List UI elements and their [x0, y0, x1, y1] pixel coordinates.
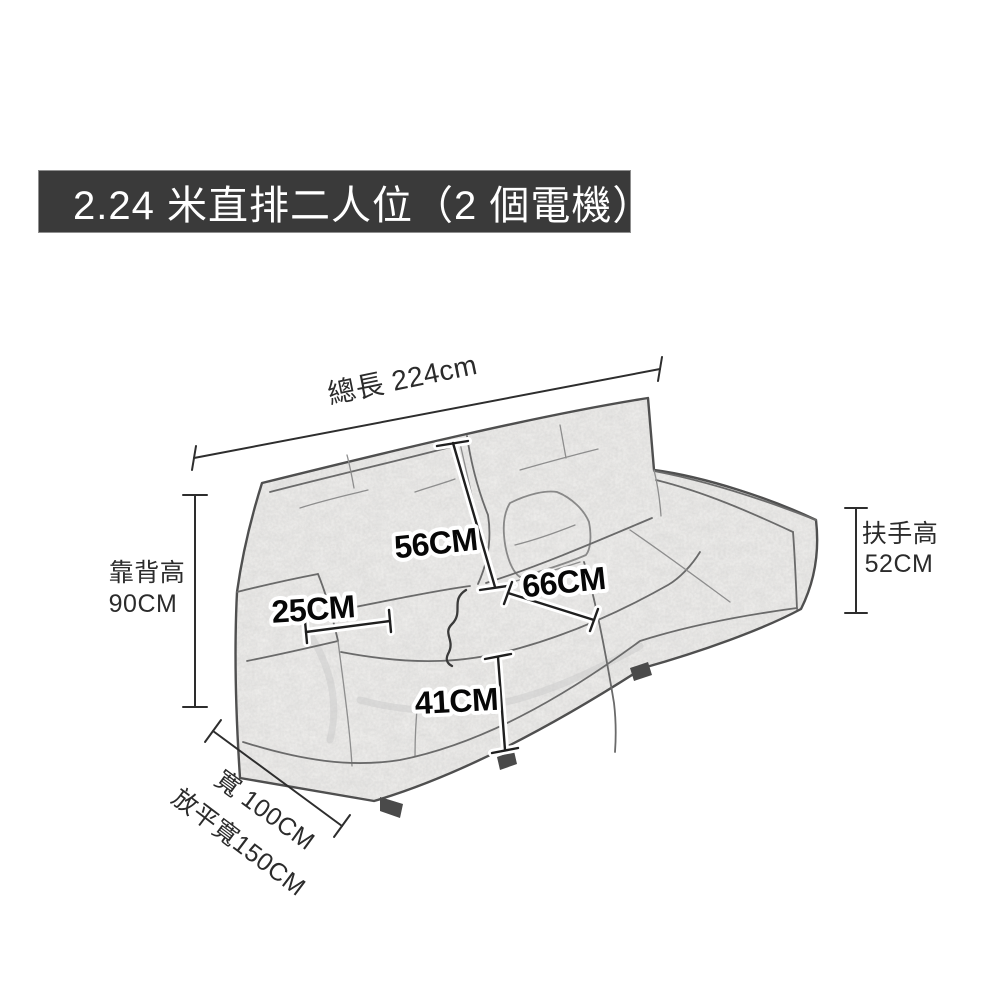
- seat-height-label: 41CM: [414, 681, 499, 721]
- sofa-foot-left: [380, 797, 403, 818]
- total-length-label: 總長 224cm: [325, 349, 480, 410]
- armrest-height-label: 扶手高: [862, 520, 939, 548]
- product-dimension-page: 2.24 米直排二人位（2 個電機）: [0, 0, 1000, 1000]
- dim-armrest-height: 扶手高 52CM: [845, 508, 938, 613]
- armrest-height-value: 52CM: [865, 550, 934, 578]
- backrest-height-value: 90CM: [109, 590, 178, 618]
- armrest-width-label: 25CM: [270, 588, 356, 630]
- dim-backrest-height: 靠背高 90CM: [109, 495, 207, 707]
- backrest-height-label: 靠背高: [109, 559, 186, 587]
- sofa-dimension-diagram: 總長 224cm 靠背高 90CM 扶手高 52CM 寬 100CM 放平寬15…: [0, 0, 1000, 1000]
